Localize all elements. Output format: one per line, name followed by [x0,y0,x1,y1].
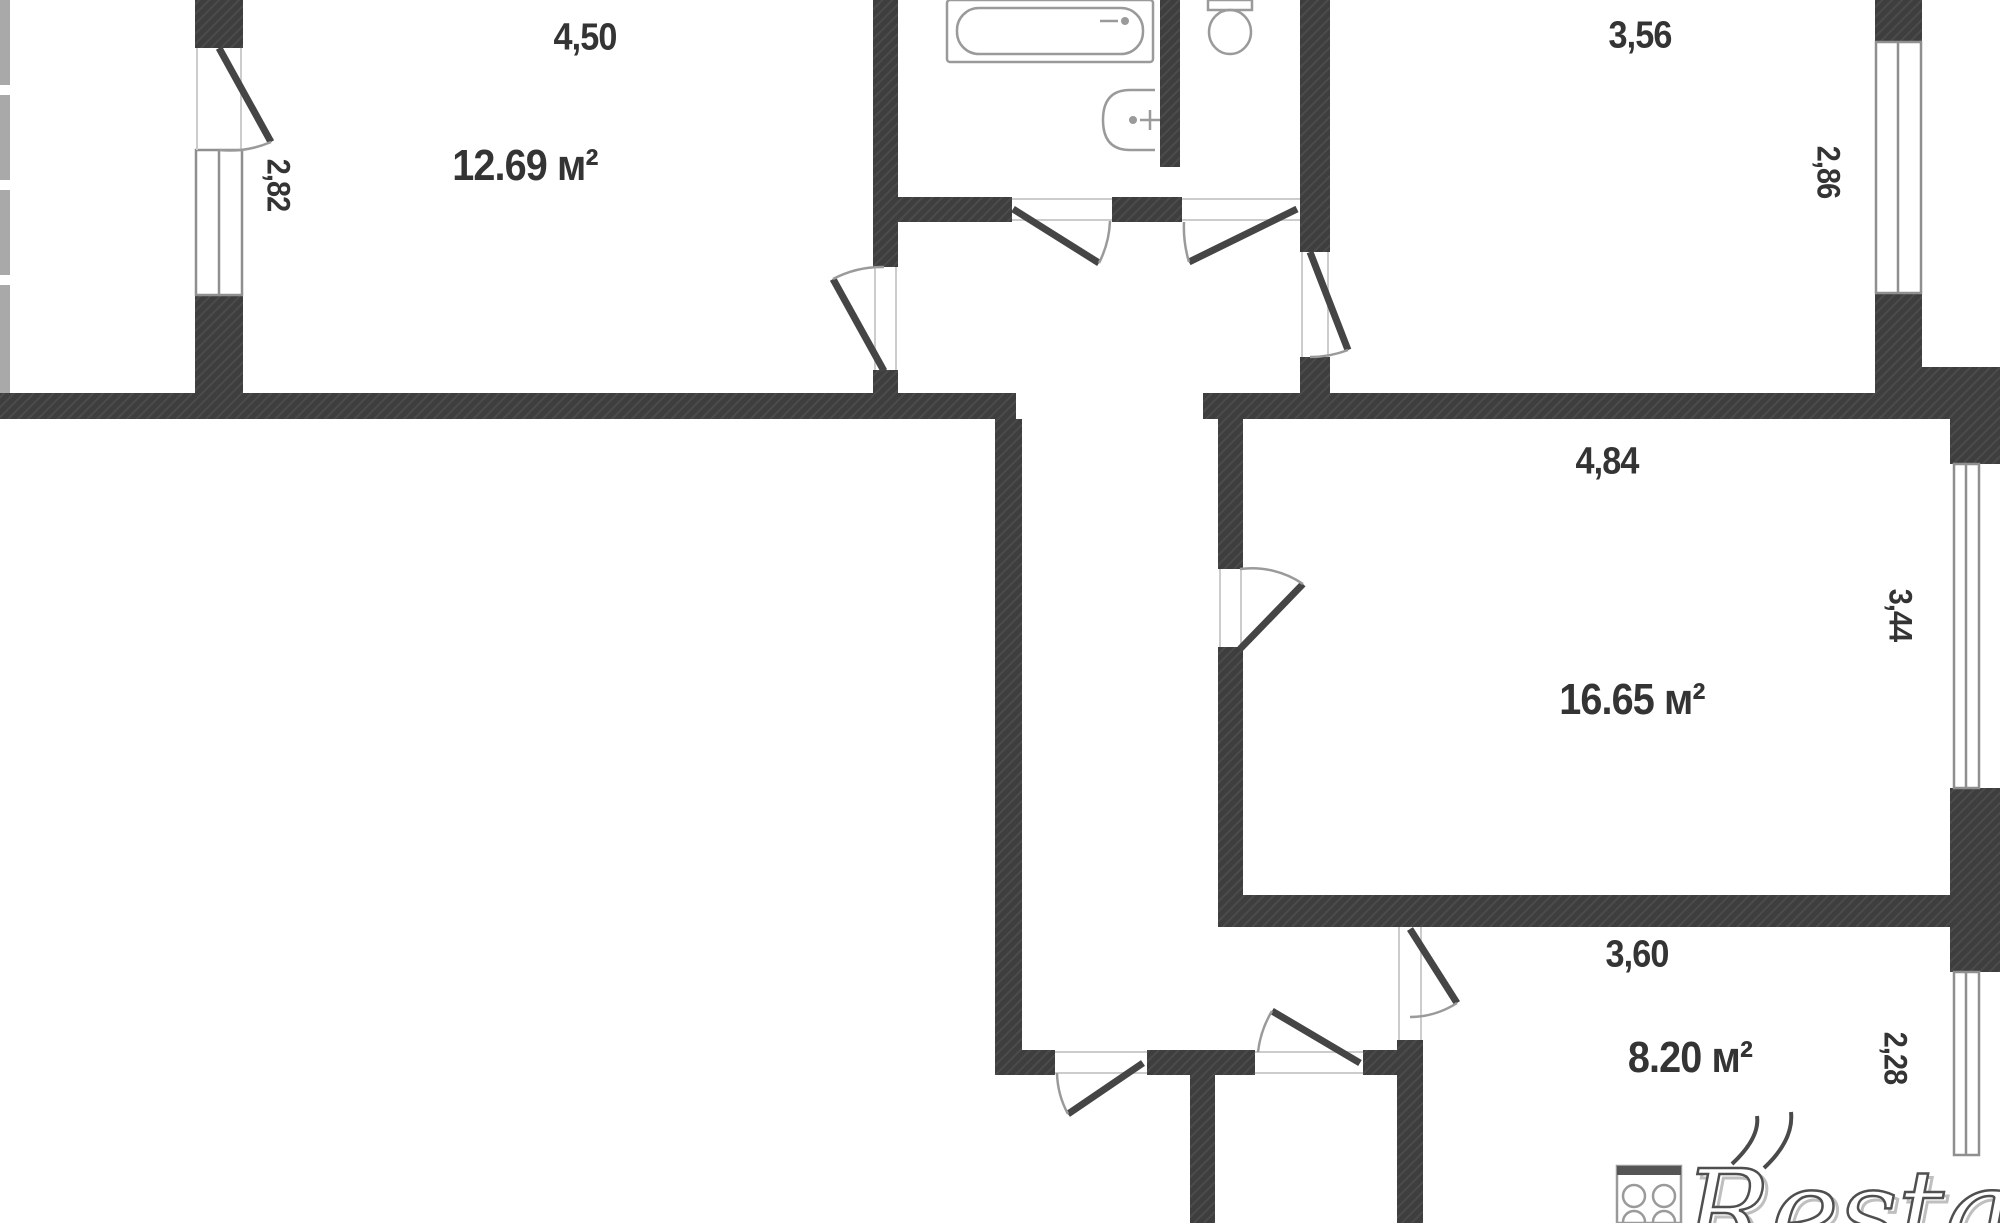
wall-segment [1147,1050,1255,1075]
window [1954,464,1979,788]
wall-segment [1950,419,2000,464]
window [196,150,242,295]
balcony-glazing [0,0,10,393]
wall-segment [995,419,1022,1075]
wall-segment [1112,197,1182,222]
doors [219,48,1457,1114]
area-label-room-top-left: 12.69 м² [452,141,597,191]
dim-label-window-room-top-right: 2,86 [1810,146,1847,198]
sink-icon [1103,90,1160,150]
room-top-left-door [833,267,884,371]
floor-plan: Restate Restate 4,50 12.69 м² 2,82 3,56 … [0,0,2000,1223]
window [1876,42,1921,293]
wall-segment [1300,357,1330,397]
wall-segment [0,393,1016,419]
wall-segment [195,0,243,48]
hall-lower-door [1057,1063,1143,1114]
wall-segment [195,295,243,395]
room-middle-right-door [1240,568,1303,649]
wall-segment [1922,367,2000,419]
dim-label-width-room-top-right: 3,56 [1609,15,1672,58]
watermark-text: Restate [1682,1146,2000,1223]
dim-label-width-room-middle-right: 4,84 [1576,441,1639,484]
wc-door [1184,209,1297,262]
wall-segment [1300,0,1330,252]
windows [196,42,1979,1155]
balcony-door [219,48,271,151]
dim-label-width-room-top-left: 4,50 [554,17,617,60]
wall-segment [1875,293,1922,393]
wall-segment [898,197,1012,222]
wall-segment [873,0,898,267]
wall-segment [1950,788,2000,972]
wall-segment [1190,1075,1215,1223]
watermark: Restate Restate [1682,1112,2000,1223]
dim-label-window-room-middle-right: 3,44 [1882,589,1919,641]
wall-segment [995,1050,1055,1075]
dim-label-width-kitchen: 3,60 [1606,934,1669,977]
wall-segment [1160,0,1180,167]
wall-segment [1397,1040,1423,1223]
wall-segment [873,370,898,396]
wall-segment [1218,419,1243,569]
bathroom-door [1013,209,1110,263]
wall-segment [1218,647,1243,897]
area-label-room-middle-right: 16.65 м² [1559,675,1704,725]
dim-label-window-kitchen: 2,28 [1877,1032,1914,1084]
dim-label-window-room-top-left: 2,82 [260,159,297,211]
area-label-kitchen: 8.20 м² [1628,1033,1752,1083]
stove-icon [1617,1166,1681,1223]
toilet-icon [1208,0,1252,54]
bathtub-icon [947,0,1153,62]
wall-segment [1218,895,1950,927]
wall-segment [1203,393,1925,419]
wall-segment [1875,0,1922,42]
corridor-door [1258,1011,1360,1063]
window [1954,972,1979,1155]
kitchen-door [1410,929,1457,1017]
